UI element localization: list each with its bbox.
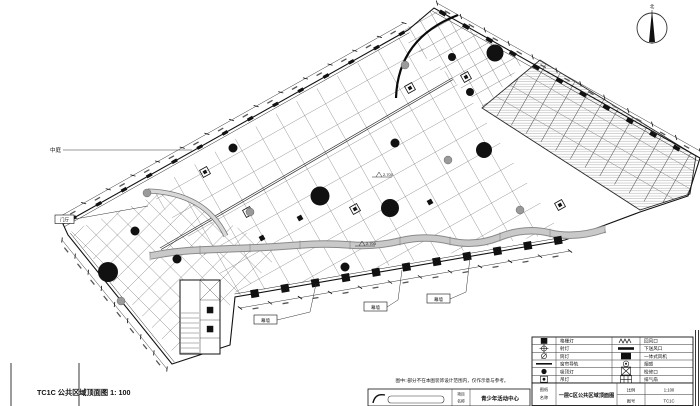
wall-tag-2: 幕墙 bbox=[371, 304, 380, 311]
legend-label: 吸顶灯 bbox=[560, 368, 574, 375]
ceiling-joint-line bbox=[160, 78, 453, 250]
legend-label: 排气扇 bbox=[644, 376, 658, 383]
atrium-label: 中庭 bbox=[50, 146, 62, 154]
wall-tag-1: 幕墙 bbox=[261, 317, 270, 324]
round-ceiling-features bbox=[98, 45, 524, 306]
project-strip: 项目 名称 青少年活动中心 bbox=[368, 389, 530, 406]
project-field-label: 项目 bbox=[457, 392, 465, 397]
elevation-value-2: 2.700 bbox=[366, 241, 377, 246]
ceiling-grid-left-wing bbox=[0, 0, 337, 406]
plan-caption: TC1C 公共区域顶面图 1: 100 bbox=[37, 388, 130, 397]
legend-label: 射灯 bbox=[560, 345, 570, 352]
drawing-sheet: 中庭 门厅 幕墙 幕墙 幕墙 2.700 2.700 北 TC1C 公共区域顶面… bbox=[0, 0, 700, 406]
sheet-name: 一层C区公共区域顶面图 bbox=[559, 391, 615, 399]
sheet-number-value: TC1C bbox=[664, 399, 675, 404]
scope-note: 图中□部分不在本图装饰设计范围内，仅作示意与参考。 bbox=[395, 377, 508, 384]
floor-plan-canvas: 中庭 门厅 幕墙 幕墙 幕墙 2.700 2.700 北 TC1C 公共区域顶面… bbox=[0, 0, 700, 406]
scale-value: 1:100 bbox=[664, 388, 675, 393]
elevation-value-1: 2.700 bbox=[383, 172, 394, 177]
stair-shaft bbox=[180, 280, 220, 354]
legend-label: 吊灯 bbox=[560, 376, 570, 383]
legend-ceiling-lamp-icon bbox=[541, 369, 546, 374]
project-field-label: 名称 bbox=[457, 399, 465, 404]
legend-fan-coil-icon bbox=[621, 353, 631, 359]
legend-label: 格栅灯 bbox=[560, 338, 574, 345]
scale-label: 比例 bbox=[627, 387, 635, 394]
legend-label: 窗帘导轨 bbox=[560, 361, 579, 368]
sheet-name-field-label: 图纸 bbox=[540, 386, 549, 393]
legend-table: 格栅灯 射灯 筒灯 窗帘导轨 吸顶灯 吊灯 回风口 下送风口 一体式风机 烟感 … bbox=[532, 337, 693, 383]
title-block: 图纸 名称 一层C区公共区域顶面图 比例 图号 1:100 TC1C bbox=[532, 383, 693, 406]
legend-label: 下送风口 bbox=[644, 345, 663, 352]
legend-label: 检修口 bbox=[644, 368, 658, 375]
legend-label: 烟感 bbox=[644, 361, 654, 368]
wall-tag-3: 幕墙 bbox=[434, 296, 443, 303]
legend-label: 筒灯 bbox=[560, 353, 570, 360]
legend-supply-air-icon bbox=[618, 347, 634, 350]
sheet-name-field-label: 名称 bbox=[540, 394, 548, 401]
project-name: 青少年活动中心 bbox=[481, 395, 519, 403]
legend-grille-light-icon bbox=[541, 338, 548, 344]
north-label: 北 bbox=[650, 3, 655, 10]
legend-label: 一体式风机 bbox=[644, 353, 667, 360]
north-arrow bbox=[637, 10, 667, 44]
foyer-tag: 门厅 bbox=[60, 217, 69, 224]
